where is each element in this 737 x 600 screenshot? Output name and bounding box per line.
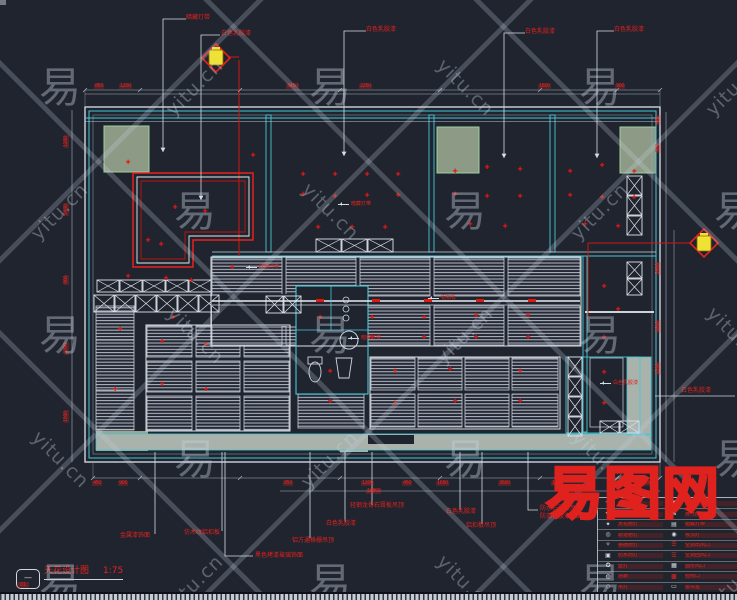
- downlight-symbol: ✚: [452, 192, 457, 198]
- legend-row: ✧格栅射灯☰空调出风口: [598, 540, 737, 550]
- downlight-symbol: ✚: [473, 335, 478, 341]
- dimension-value: 600: [656, 115, 661, 125]
- drawing-title: 天花设计图1:75: [44, 566, 123, 580]
- dimension-value: 2400: [656, 262, 661, 275]
- drawing-sub-number: 01: [17, 582, 29, 588]
- legend-symbol: ◎: [598, 532, 618, 538]
- downlight-symbol: ✚: [601, 370, 606, 376]
- inner-annotation: 铝扣板: [428, 296, 456, 301]
- downlight-symbol: ✚: [159, 339, 164, 345]
- downlight-symbol: ✚: [631, 169, 636, 175]
- downlight-symbol: ✚: [525, 335, 530, 341]
- material-label: 白色乳胶漆: [221, 31, 251, 37]
- dimension-value: 1200: [119, 84, 132, 89]
- dimension-value: 1650: [436, 481, 449, 486]
- legend-label: 圆形风口: [685, 564, 737, 569]
- legend-label: 检修口: [685, 574, 737, 579]
- inner-annotation: 暗藏灯带: [348, 336, 381, 341]
- downlight-symbol: ✚: [517, 167, 522, 173]
- legend-label: 空调出风口: [685, 543, 737, 548]
- inner-annotation: 暗藏灯带: [338, 202, 371, 207]
- downlight-symbol: ✚: [125, 274, 130, 280]
- dimension-value: 3300: [64, 342, 69, 355]
- material-label: 白色乳胶漆: [614, 27, 644, 33]
- downlight-symbol: ✚: [452, 169, 457, 175]
- downlight-symbol: ✚: [170, 315, 175, 321]
- dimension-value: 2400: [64, 203, 69, 216]
- downlight-symbol: ✚: [332, 172, 337, 178]
- dimension-value: 900: [118, 481, 128, 486]
- dimension-value: 850: [94, 84, 104, 89]
- legend-label: 格栅射灯: [618, 543, 663, 548]
- downlight-symbol: ✚: [601, 284, 606, 290]
- material-label: 仿木纹铝扣板: [184, 530, 220, 536]
- material-label: 白色乳胶漆: [366, 27, 396, 33]
- downlight-symbol: ✚: [159, 382, 164, 388]
- downlight-symbol: ✚: [369, 335, 374, 341]
- vent-tick: [528, 299, 536, 302]
- downlight-symbol: ✚: [517, 194, 522, 200]
- drawing-scale: 1:75: [103, 566, 123, 576]
- legend-row: ◎轨道射灯◉吸顶灯: [598, 529, 737, 539]
- legend-label: 轨道射灯: [618, 533, 663, 538]
- dimension-value: 450: [402, 481, 412, 486]
- dimension-value: 900: [656, 143, 661, 153]
- yitu-logo: 易图网: [546, 466, 720, 523]
- material-label: 白色乳胶漆: [681, 388, 711, 394]
- legend-row: ◇吊灯▭窗帘盒: [598, 582, 737, 592]
- downlight-symbol: ✚: [599, 195, 604, 201]
- downlight-symbol: ✚: [567, 169, 572, 175]
- legend-symbol: ◍: [598, 574, 618, 580]
- legend-symbol: ✧: [598, 542, 618, 548]
- legend-row: ▣防水筒灯☰空调回风口: [598, 550, 737, 560]
- corner-mark: [0, 0, 6, 5]
- downlight-symbol: ✚: [349, 225, 354, 231]
- downlight-symbol: ✚: [601, 335, 606, 341]
- downlight-symbol: ✚: [327, 369, 332, 375]
- downlight-symbol: ✚: [317, 315, 322, 321]
- downlight-symbol: ✚: [421, 315, 426, 321]
- legend-label: 窗帘盒: [685, 585, 737, 590]
- legend-symbol: ◉: [663, 532, 685, 538]
- downlight-symbol: ✚: [172, 205, 177, 211]
- material-label: 白色乳胶漆: [326, 521, 356, 527]
- legend-label: 吸顶灯: [685, 533, 737, 538]
- downlight-symbol: ✚: [369, 315, 374, 321]
- dimension-value: 2250: [359, 84, 372, 89]
- downlight-symbol: ✚: [117, 327, 122, 333]
- downlight-symbol: ✚: [484, 165, 489, 171]
- drawing-number-label: —: [24, 573, 32, 582]
- downlight-symbol: ✚: [229, 265, 234, 271]
- vent-tick: [372, 299, 380, 302]
- dimension-value: 3450: [286, 84, 299, 89]
- downlight-symbol: ✚: [300, 192, 305, 198]
- dimension-value: 850: [283, 481, 293, 486]
- dimension-value: 3600: [498, 481, 511, 486]
- legend-symbol: ☰: [663, 553, 685, 559]
- downlight-symbol: ✚: [392, 401, 397, 407]
- legend-symbol: ▣: [598, 553, 618, 559]
- legend-label: 吊灯: [618, 585, 663, 590]
- cad-viewport[interactable]: 暗藏灯带白色乳胶漆白色乳胶漆白色乳胶漆白色乳胶漆白色乳胶漆金属漆饰面仿木纹铝扣板…: [0, 0, 737, 600]
- downlight-symbol: ✚: [447, 367, 452, 373]
- downlight-symbol: ✚: [582, 222, 587, 228]
- legend-symbol: ▭: [663, 584, 685, 590]
- downlight-symbol: ✚: [203, 387, 208, 393]
- material-label: 金属漆饰面: [120, 533, 150, 539]
- vent-tick: [476, 299, 484, 302]
- downlight-symbol: ✚: [300, 172, 305, 178]
- dimension-value: 1200: [64, 135, 69, 148]
- downlight-symbol: ✚: [452, 399, 457, 405]
- downlight-symbol: ✚: [631, 195, 636, 201]
- downlight-symbol: ✚: [395, 193, 400, 199]
- downlight-symbol: ✚: [163, 276, 168, 282]
- material-label: 铝方通格栅吊顶: [292, 538, 334, 544]
- dimension-value: 1200: [361, 481, 374, 486]
- downlight-symbol: ✚: [382, 225, 387, 231]
- dimension-value: 900: [64, 275, 69, 285]
- dimension-value: 1800: [538, 84, 551, 89]
- legend-symbol: ☰: [663, 542, 685, 548]
- material-label: 黑色烤漆玻璃饰面: [255, 553, 303, 559]
- downlight-symbol: ✚: [332, 194, 337, 200]
- inner-annotation: 暗藏灯带: [246, 265, 279, 270]
- legend-label: 壁灯: [618, 564, 663, 569]
- dimension-value: 1500: [64, 410, 69, 423]
- downlight-symbol: ✚: [202, 209, 207, 215]
- downlight-symbol: ✚: [421, 335, 426, 341]
- downlight-symbol: ✚: [502, 224, 507, 230]
- downlight-symbol: ✚: [364, 193, 369, 199]
- downlight-symbol: ✚: [473, 313, 478, 319]
- downlight-symbol: ✚: [327, 399, 332, 405]
- legend-row: ✪壁灯▦圆形风口: [598, 561, 737, 571]
- legend-row: ◍浴霸▩检修口: [598, 571, 737, 581]
- downlight-symbol: ✚: [315, 225, 320, 231]
- inner-annotation: 白色乳胶漆: [600, 381, 638, 386]
- legend-label: 防水筒灯: [618, 553, 663, 558]
- downlight-symbol: ✚: [525, 313, 530, 319]
- downlight-symbol: ✚: [517, 369, 522, 375]
- legend-label: 空调回风口: [685, 553, 737, 558]
- dimension-value: 1800: [656, 320, 661, 333]
- material-label: 白色乳胶漆: [525, 29, 555, 35]
- downlight-symbol: ✚: [188, 278, 193, 284]
- material-label: 铝扣板吊顶: [466, 523, 496, 529]
- dimension-value: 1200: [656, 362, 661, 375]
- downlight-symbol: ✚: [517, 399, 522, 405]
- downlight-symbol: ✚: [599, 163, 604, 169]
- perforation-strip: [0, 592, 737, 600]
- drawing-title-text: 天花设计图: [44, 566, 89, 576]
- legend-symbol: ▦: [663, 563, 685, 569]
- downlight-symbol: ✚: [467, 222, 472, 228]
- vent-tick: [316, 299, 324, 302]
- downlight-symbol: ✚: [145, 238, 150, 244]
- downlight-symbol: ✚: [158, 242, 163, 248]
- dimension-value: 900: [615, 84, 625, 89]
- dimension-value: 16800: [366, 489, 381, 494]
- downlight-symbol: ✚: [392, 369, 397, 375]
- material-label: 白色乳胶漆: [446, 509, 476, 515]
- dimension-value: 450: [92, 481, 102, 486]
- downlight-symbol: ✚: [112, 387, 117, 393]
- downlight-symbol: ✚: [567, 193, 572, 199]
- legend-symbol: ✪: [598, 563, 618, 569]
- material-label: 暗藏灯带: [186, 15, 210, 21]
- downlight-symbol: ✚: [395, 172, 400, 178]
- downlight-symbol: ✚: [615, 224, 620, 230]
- downlight-symbol: ✚: [364, 172, 369, 178]
- vent-tick: [424, 299, 432, 302]
- downlight-symbol: ✚: [601, 401, 606, 407]
- legend-label: 浴霸: [618, 574, 663, 579]
- material-label: 轻钢龙骨石膏板吊顶: [350, 503, 404, 509]
- legend-symbol: ▩: [663, 574, 685, 580]
- downlight-symbol: ✚: [484, 194, 489, 200]
- downlight-symbol: ✚: [615, 307, 620, 313]
- downlight-symbol: ✚: [250, 153, 255, 159]
- downlight-symbol: ✚: [203, 342, 208, 348]
- legend-symbol: ◇: [598, 584, 618, 590]
- downlight-symbol: ✚: [125, 160, 130, 166]
